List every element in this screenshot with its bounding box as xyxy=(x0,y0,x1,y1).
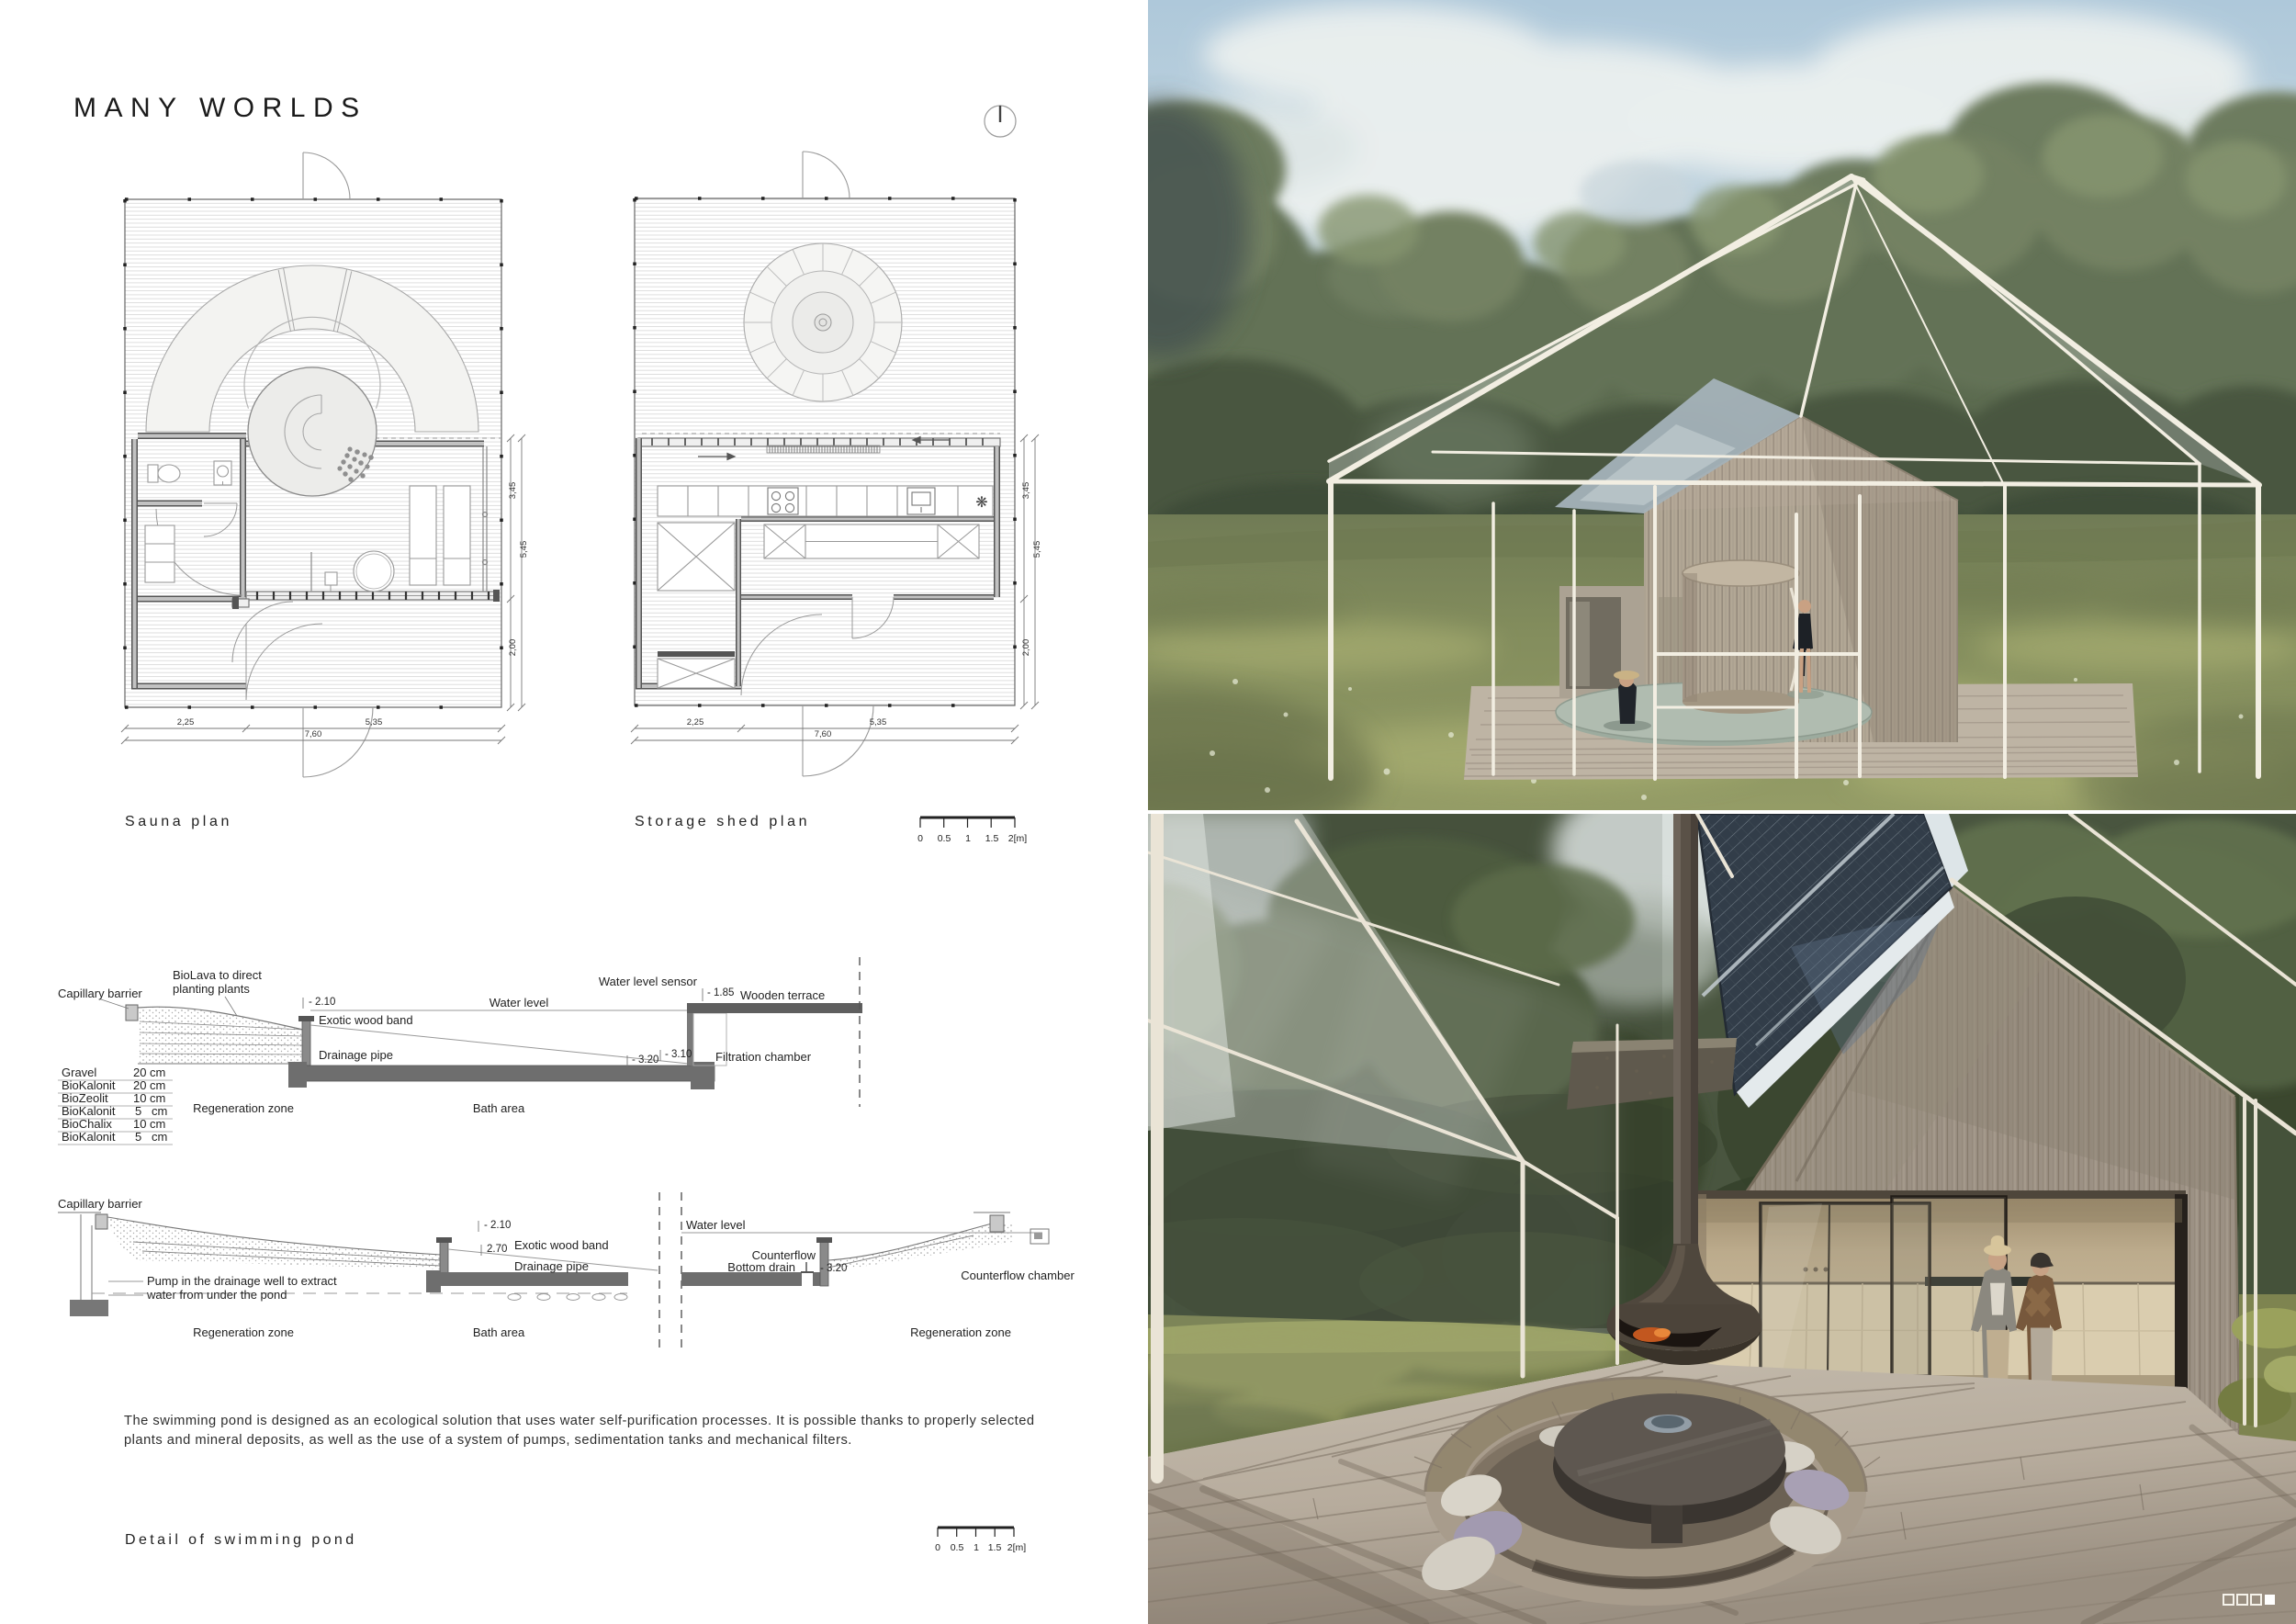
svg-text:2.70: 2.70 xyxy=(487,1244,507,1255)
svg-text:Capillary barrier: Capillary barrier xyxy=(58,1197,142,1211)
svg-text:2[m]: 2[m] xyxy=(1008,833,1028,844)
svg-text:Bath area: Bath area xyxy=(473,1101,525,1115)
svg-text:Water level: Water level xyxy=(490,996,549,1009)
svg-text:The swimming pond is designed: The swimming pond is designed as an ecol… xyxy=(124,1414,1035,1428)
svg-text:Regeneration zone: Regeneration zone xyxy=(910,1325,1011,1339)
svg-text:0.5: 0.5 xyxy=(951,1542,964,1553)
svg-text:Gravel: Gravel xyxy=(62,1066,96,1079)
svg-text:- 1.85: - 1.85 xyxy=(707,987,734,998)
svg-text:Pump in the drainage well to e: Pump in the drainage well to extract xyxy=(147,1274,337,1288)
svg-text:Filtration chamber: Filtration chamber xyxy=(715,1050,812,1064)
svg-text:Exotic wood band: Exotic wood band xyxy=(319,1013,413,1027)
svg-text:MANY WORLDS: MANY WORLDS xyxy=(73,93,367,123)
svg-text:Wooden terrace: Wooden terrace xyxy=(740,988,825,1002)
svg-text:Drainage pipe: Drainage pipe xyxy=(319,1048,393,1062)
svg-text:cm: cm xyxy=(150,1066,165,1079)
svg-text:7,60: 7,60 xyxy=(815,729,832,739)
svg-text:- 3.20: - 3.20 xyxy=(632,1054,658,1066)
svg-text:Regeneration zone: Regeneration zone xyxy=(193,1325,294,1339)
svg-text:20: 20 xyxy=(133,1066,146,1079)
svg-text:3,45: 3,45 xyxy=(508,482,518,500)
svg-text:5,35: 5,35 xyxy=(870,717,887,727)
svg-text:water from under the pond: water from under the pond xyxy=(146,1288,287,1302)
svg-text:Sauna plan: Sauna plan xyxy=(125,814,232,829)
svg-text:0: 0 xyxy=(917,833,923,844)
svg-text:- 2.10: - 2.10 xyxy=(484,1220,511,1231)
svg-text:2,00: 2,00 xyxy=(1021,639,1031,657)
svg-text:Regeneration zone: Regeneration zone xyxy=(193,1101,294,1115)
svg-text:5,35: 5,35 xyxy=(366,717,383,727)
svg-text:- 3.10: - 3.10 xyxy=(665,1049,692,1060)
svg-text:Capillary barrier: Capillary barrier xyxy=(58,987,142,1000)
svg-text:Water level: Water level xyxy=(686,1218,746,1232)
svg-text:5,45: 5,45 xyxy=(519,541,529,558)
svg-text:5,45: 5,45 xyxy=(1032,541,1042,558)
svg-text:Bath area: Bath area xyxy=(473,1325,525,1339)
svg-text:planting plants: planting plants xyxy=(173,982,250,996)
svg-text:- 3.20: - 3.20 xyxy=(820,1263,847,1274)
svg-text:2,25: 2,25 xyxy=(687,717,704,727)
svg-text:Counterflow chamber: Counterflow chamber xyxy=(961,1269,1075,1282)
svg-text:plants and mineral deposits, a: plants and mineral deposits, as well as … xyxy=(124,1433,852,1448)
svg-text:1: 1 xyxy=(974,1542,979,1553)
svg-text:Drainage pipe: Drainage pipe xyxy=(514,1259,589,1273)
svg-text:❋: ❋ xyxy=(975,495,987,511)
svg-text:2[m]: 2[m] xyxy=(1007,1542,1027,1553)
svg-text:1: 1 xyxy=(965,833,971,844)
svg-text:1.5: 1.5 xyxy=(988,1542,1002,1553)
svg-text:Storage shed plan: Storage shed plan xyxy=(635,814,810,829)
svg-text:Detail of swimming pond: Detail of swimming pond xyxy=(125,1532,357,1548)
svg-text:Water level sensor: Water level sensor xyxy=(599,975,698,988)
svg-text:Exotic wood band: Exotic wood band xyxy=(514,1238,609,1252)
svg-text:7,60: 7,60 xyxy=(305,729,322,739)
svg-text:2,00: 2,00 xyxy=(508,639,518,657)
svg-text:0.5: 0.5 xyxy=(938,833,951,844)
svg-text:1.5: 1.5 xyxy=(985,833,999,844)
svg-text:3,45: 3,45 xyxy=(1021,482,1031,500)
svg-text:BioLava to direct: BioLava to direct xyxy=(173,968,262,982)
svg-text:0: 0 xyxy=(935,1542,940,1553)
svg-text:2,25: 2,25 xyxy=(177,717,195,727)
svg-text:- 2.10: - 2.10 xyxy=(309,997,335,1008)
svg-text:Bottom drain: Bottom drain xyxy=(727,1260,795,1274)
